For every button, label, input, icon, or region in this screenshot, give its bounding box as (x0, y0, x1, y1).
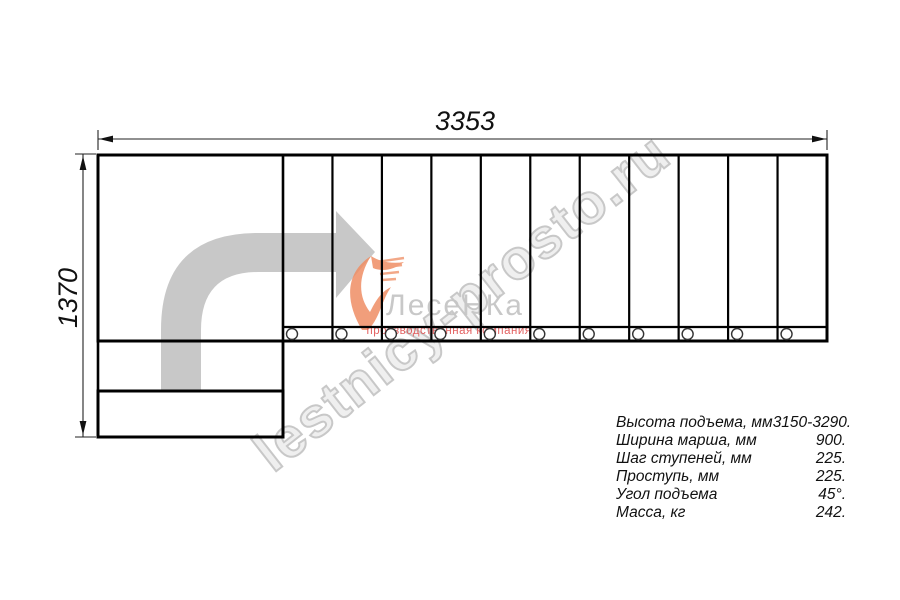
arrowhead-up (80, 156, 87, 170)
spec-row: Высота подъема, мм 3150-3290. (616, 414, 846, 432)
width-dimension-label: 3353 (415, 106, 515, 137)
spec-label: Шаг ступеней, мм (616, 450, 752, 468)
spec-value: 225. (816, 468, 846, 486)
stair-plan-drawing: lestnicy-prosto.ru ЛесеНКа производствен… (0, 0, 900, 600)
bolt-circle-icon (781, 329, 792, 340)
arrowhead-right (812, 136, 826, 143)
arrowhead-left (99, 136, 113, 143)
spec-row: Проступь, мм 225. (616, 468, 846, 486)
landing-lower-band (98, 341, 283, 391)
arrowhead-down (80, 421, 87, 435)
spec-value: 45°. (818, 486, 846, 504)
spec-label: Проступь, мм (616, 468, 719, 486)
spec-label: Масса, кг (616, 504, 685, 522)
bolt-circle-icon (336, 329, 347, 340)
bolt-circle-icon (484, 329, 495, 340)
spec-value: 242. (816, 504, 846, 522)
spec-value: 225. (816, 450, 846, 468)
bolts-group (287, 329, 793, 340)
bolt-circle-icon (534, 329, 545, 340)
bolt-circle-icon (385, 329, 396, 340)
spec-label: Высота подъема, мм (616, 414, 773, 432)
plan-outer-outline (98, 155, 827, 341)
spec-value: 900. (816, 432, 846, 450)
bolt-circle-icon (287, 329, 298, 340)
treads-group (332, 157, 777, 340)
spec-row: Угол подъема 45°. (616, 486, 846, 504)
bolt-circle-icon (682, 329, 693, 340)
spec-label: Угол подъема (616, 486, 717, 504)
spec-table: Высота подъема, мм 3150-3290. Ширина мар… (616, 414, 846, 522)
bolt-circle-icon (583, 329, 594, 340)
spec-row: Ширина марша, мм 900. (616, 432, 846, 450)
spec-row: Шаг ступеней, мм 225. (616, 450, 846, 468)
spec-label: Ширина марша, мм (616, 432, 757, 450)
spec-row: Масса, кг 242. (616, 504, 846, 522)
bolt-circle-icon (633, 329, 644, 340)
landing-bottom-step (98, 391, 283, 437)
bolt-circle-icon (732, 329, 743, 340)
bolt-circle-icon (435, 329, 446, 340)
height-dimension-label: 1370 (53, 253, 83, 343)
spec-value: 3150-3290. (773, 414, 851, 432)
